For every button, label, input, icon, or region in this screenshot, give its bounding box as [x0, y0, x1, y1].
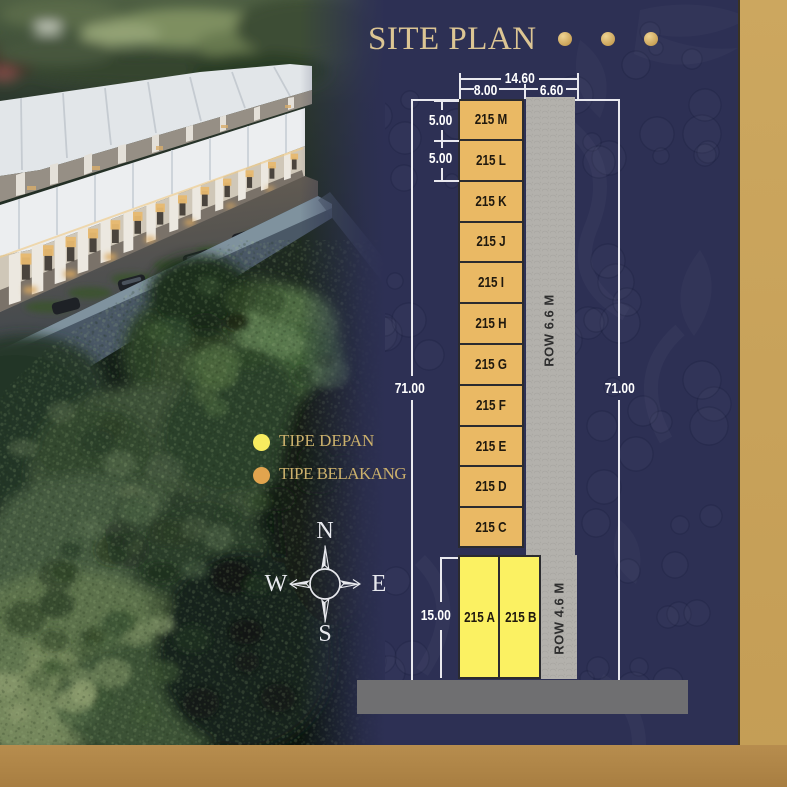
svg-text:E: E — [372, 571, 387, 597]
svg-text:N: N — [316, 519, 333, 544]
svg-text:S: S — [318, 621, 331, 647]
svg-text:W: W — [265, 571, 288, 597]
